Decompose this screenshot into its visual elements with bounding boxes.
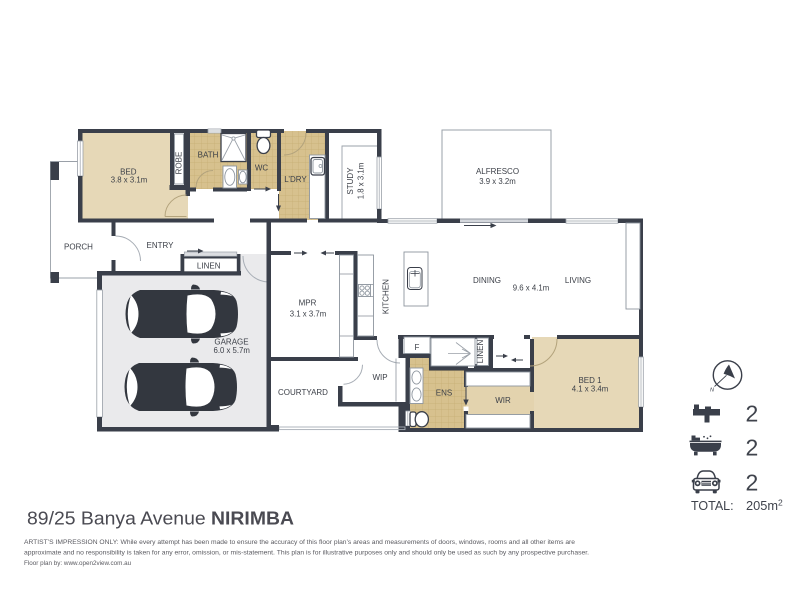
svg-text:9.6 x 4.1m: 9.6 x 4.1m [513, 284, 549, 293]
svg-text:BATH: BATH [198, 151, 219, 160]
svg-text:DINING: DINING [473, 276, 501, 285]
svg-text:2: 2 [746, 435, 759, 461]
svg-text:KITCHEN: KITCHEN [382, 279, 391, 314]
svg-text:MPR: MPR [299, 299, 317, 308]
svg-text:N: N [710, 388, 714, 394]
svg-text:WC: WC [255, 164, 269, 173]
svg-text:3.9 x 3.2m: 3.9 x 3.2m [479, 177, 515, 186]
svg-text:2: 2 [746, 470, 759, 496]
svg-text:GARAGE: GARAGE [214, 337, 248, 346]
svg-text:F: F [415, 343, 420, 352]
svg-text:4.1 x 3.4m: 4.1 x 3.4m [572, 385, 608, 394]
svg-text:205m2: 205m2 [746, 498, 783, 514]
svg-text:3.8 x 3.1m: 3.8 x 3.1m [111, 176, 147, 185]
svg-text:2: 2 [746, 401, 759, 427]
svg-text:3.1 x 3.7m: 3.1 x 3.7m [290, 310, 326, 319]
svg-text:TOTAL:: TOTAL: [691, 499, 734, 513]
svg-text:approximate and no responsibil: approximate and no responsibility is tak… [24, 550, 589, 557]
svg-text:LINEN: LINEN [197, 261, 221, 270]
svg-text:Floor plan by: www.open2view.c: Floor plan by: www.open2view.com.au [24, 560, 132, 567]
svg-text:COURTYARD: COURTYARD [278, 388, 328, 397]
svg-text:PORCH: PORCH [64, 243, 93, 252]
svg-text:1.8 x 3.1m: 1.8 x 3.1m [357, 163, 366, 199]
svg-text:89/25 Banya Avenue NIRIMBA: 89/25 Banya Avenue NIRIMBA [27, 509, 294, 529]
svg-text:L’DRY: L’DRY [284, 175, 307, 184]
svg-text:WIP: WIP [372, 373, 387, 382]
svg-text:LIVING: LIVING [565, 276, 591, 285]
svg-text:ROBE: ROBE [175, 152, 184, 175]
svg-text:ARTIST’S IMPRESSION ONLY: Whil: ARTIST’S IMPRESSION ONLY: While every at… [24, 539, 576, 546]
svg-text:LINEN: LINEN [476, 339, 485, 363]
svg-text:WIR: WIR [495, 396, 511, 405]
svg-text:STUDY: STUDY [346, 167, 355, 195]
svg-text:6.0 x 5.7m: 6.0 x 5.7m [213, 346, 249, 355]
svg-text:ENTRY: ENTRY [147, 241, 175, 250]
svg-text:ALFRESCO: ALFRESCO [476, 167, 519, 176]
svg-text:ENS: ENS [436, 389, 452, 398]
